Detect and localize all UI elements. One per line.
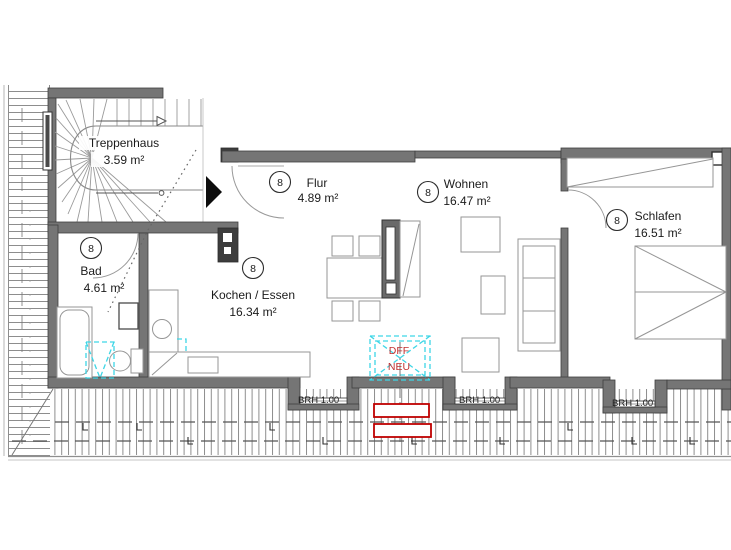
top-wall-wohnen — [415, 151, 561, 158]
room-area-flur: 4.89 m² — [298, 191, 339, 205]
room-area-kochen: 16.34 m² — [229, 305, 276, 319]
washbasin — [119, 303, 138, 329]
room-label-flur: Flur — [307, 176, 328, 190]
room-area-treppenhaus: 3.59 m² — [104, 153, 145, 167]
toilet — [110, 351, 131, 371]
kitchen-sink — [153, 320, 172, 339]
room-label-wohnen: Wohnen — [444, 177, 488, 191]
room-number-wohnen: 8 — [425, 187, 431, 199]
dining-table — [327, 258, 382, 298]
room-area-bad: 4.61 m² — [84, 281, 125, 295]
armchair — [461, 217, 500, 252]
dining-chair — [359, 301, 380, 321]
roof-window-label-2: NEU — [388, 361, 410, 373]
room-area-schlafen: 16.51 m² — [634, 226, 681, 240]
coffee-table — [481, 276, 505, 314]
roof-window-label-1: DFF — [389, 345, 409, 357]
highlight-rect-1 — [374, 404, 429, 417]
bedroom-wall-bottom — [561, 228, 568, 380]
room-label-bad: Bad — [80, 264, 101, 278]
floor-plan-drawing: Treppenhaus 3.59 m² 8 Flur 4.89 m² 8 Woh… — [0, 0, 731, 550]
room-number-kochen: 8 — [250, 263, 256, 275]
sill-label-3: BRH 1.00 — [612, 398, 653, 409]
room-number-schlafen: 8 — [614, 215, 620, 227]
room-area-wohnen: 16.47 m² — [443, 194, 490, 208]
room-label-schlafen: Schlafen — [635, 209, 682, 223]
dining-chair — [332, 301, 353, 321]
dining-chair — [332, 236, 353, 256]
highlight-rect-2 — [374, 424, 431, 437]
sill-label-1: BRH 1.00 — [298, 395, 339, 406]
schlafen-door-arc — [568, 190, 606, 228]
cooktop — [188, 357, 218, 373]
top-wall-flur — [222, 151, 415, 162]
bottom-wall-2 — [352, 377, 455, 388]
floor-plan: Treppenhaus 3.59 m² 8 Flur 4.89 m² 8 Woh… — [0, 0, 731, 550]
room-label-treppenhaus: Treppenhaus — [89, 136, 159, 150]
bad-top-wall — [48, 222, 238, 233]
dining-chair — [359, 236, 380, 256]
sill-label-2: BRH 1.00 — [459, 395, 500, 406]
room-number-bad: 8 — [88, 243, 94, 255]
entrance-arrow — [206, 176, 222, 208]
bottom-wall-4 — [667, 380, 731, 389]
toilet-tank — [131, 349, 143, 373]
room-number-flur: 8 — [277, 177, 283, 189]
bottom-wall-3 — [510, 377, 610, 388]
stair-top-wall — [48, 88, 163, 98]
stair-start-circle — [159, 191, 164, 196]
room-label-kochen: Kochen / Essen — [211, 288, 295, 302]
armchair — [462, 338, 499, 372]
